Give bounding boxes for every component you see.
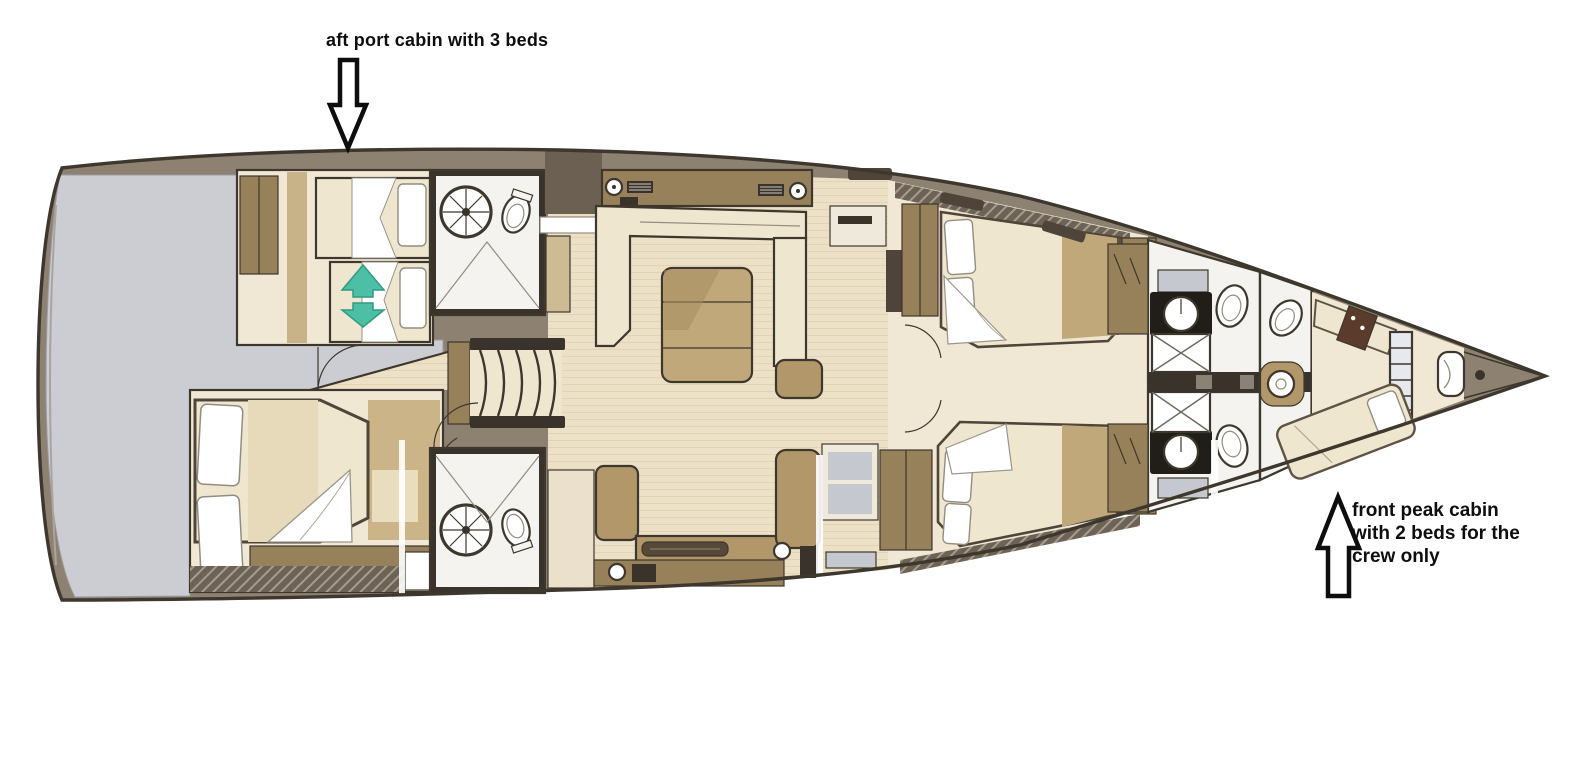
deck-locker <box>545 150 602 214</box>
seam <box>399 440 405 635</box>
washbasin-starboard <box>1150 430 1212 474</box>
porthole-icon <box>774 543 790 559</box>
cabin-partition <box>287 172 307 343</box>
speaker-dot <box>796 189 800 193</box>
drain <box>462 526 470 534</box>
sofa-end-table <box>776 360 822 398</box>
annotation-line: front peak cabin <box>1352 499 1520 522</box>
pillow <box>197 495 243 575</box>
aft-port-bed-2 <box>330 262 430 342</box>
bow-seat <box>1438 352 1464 396</box>
drain <box>462 208 470 216</box>
windlass-icon <box>1475 370 1485 380</box>
sink-strip <box>886 250 902 312</box>
washbasin-port <box>1150 292 1212 336</box>
counter-pad <box>1158 270 1208 292</box>
shower-starboard <box>1152 392 1210 432</box>
galley-cabinet-left <box>548 470 594 588</box>
cabinet-vent <box>838 216 872 224</box>
cushion-pad <box>828 452 872 480</box>
shelf-unit <box>540 217 603 233</box>
yacht-floorplan-page: aft port cabin with 3 beds front peak ca… <box>0 0 1584 782</box>
sofa-arm-right <box>774 238 806 366</box>
cushion-pad <box>828 484 872 514</box>
pillow <box>943 503 972 545</box>
down-block-arrow-icon <box>330 60 366 148</box>
aft-bathroom-port <box>430 170 545 315</box>
staircase <box>448 338 565 428</box>
stair-rail-top <box>470 338 565 350</box>
step-pad <box>826 552 876 568</box>
control-panel <box>620 197 638 205</box>
side-deck-tread <box>190 566 405 592</box>
systems-box <box>1196 375 1212 389</box>
pillow <box>944 219 976 275</box>
shower-port <box>1152 334 1210 372</box>
wardrobe <box>1108 424 1148 512</box>
aft-port-cabin-annotation: aft port cabin with 3 beds <box>326 30 548 51</box>
pillow <box>398 184 426 246</box>
porthole-icon <box>609 564 625 580</box>
seam <box>816 455 823 610</box>
aft-port-bed-1 <box>316 178 430 258</box>
pillow <box>197 404 243 486</box>
appliance-box <box>405 552 433 590</box>
speaker-dot <box>612 185 616 189</box>
seam <box>1211 440 1218 565</box>
systems-box <box>1240 375 1254 389</box>
wardrobe <box>1108 244 1148 334</box>
cooktop <box>632 564 656 582</box>
salon-table <box>662 268 752 382</box>
annotation-line: with 2 beds for the <box>1352 522 1520 545</box>
stair-rail-bottom <box>470 416 565 428</box>
galley-fridge <box>776 450 820 548</box>
carpet-highlight <box>372 470 418 522</box>
front-peak-cabin-annotation: front peak cabin with 2 beds for the cre… <box>1352 499 1520 568</box>
annotation-line: crew only <box>1352 545 1520 568</box>
vanity-cabinet <box>830 206 886 246</box>
side-cabinet <box>546 236 570 312</box>
yacht-floor-plan <box>0 0 1584 782</box>
aft-starboard-cabin <box>190 390 457 592</box>
galley-tall-cabinet <box>596 466 638 540</box>
crew-washbasin <box>1260 362 1304 406</box>
pillow <box>400 268 426 328</box>
basin-bowl <box>1268 371 1294 397</box>
equipment-panel <box>800 546 818 578</box>
